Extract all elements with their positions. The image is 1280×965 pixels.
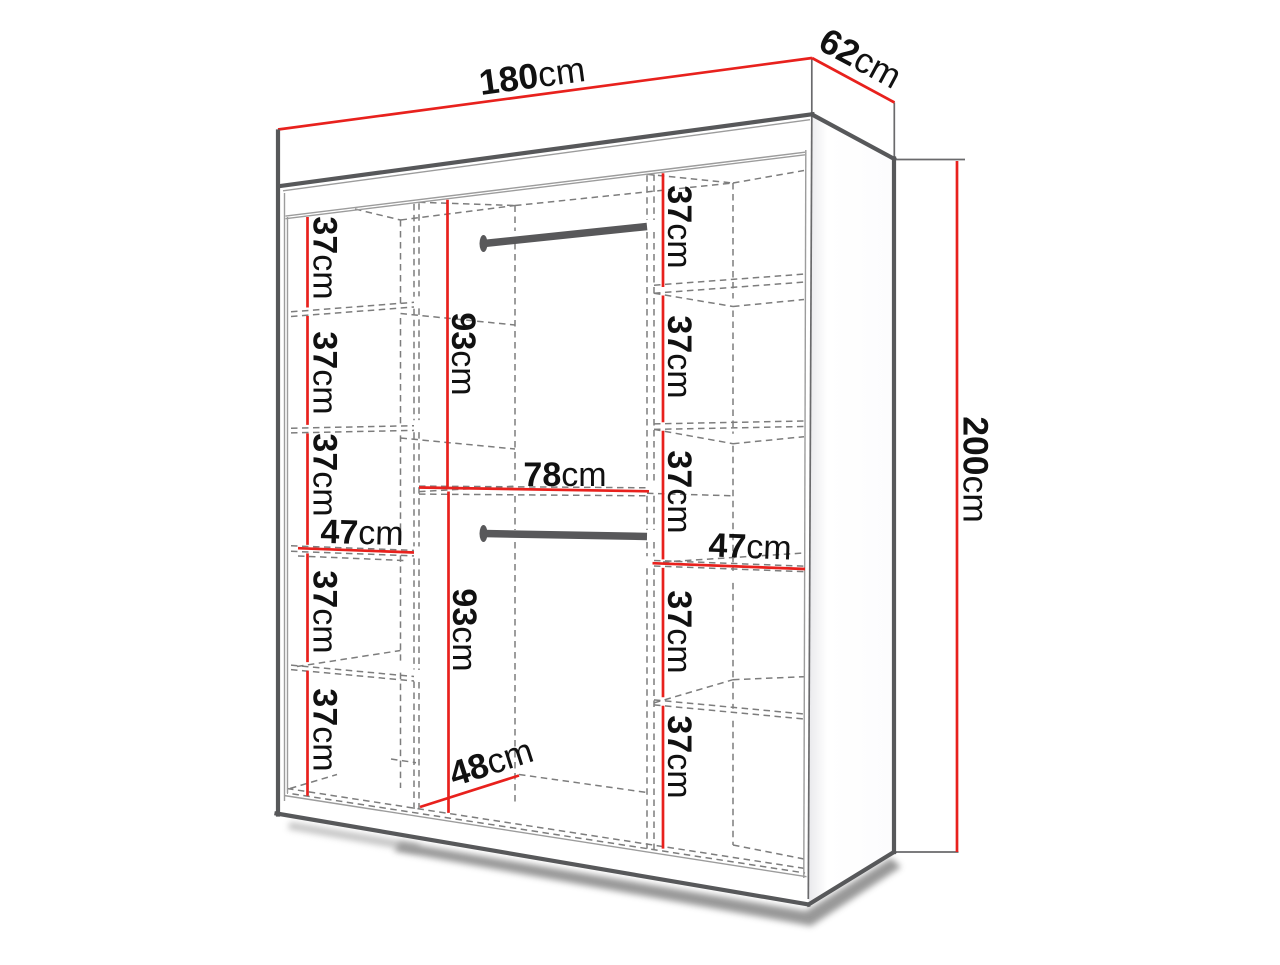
- svg-text:78cm: 78cm: [523, 456, 606, 494]
- svg-text:37cm: 37cm: [306, 331, 344, 414]
- svg-text:93cm: 93cm: [445, 588, 483, 671]
- svg-text:37cm: 37cm: [306, 216, 344, 299]
- svg-text:37cm: 37cm: [306, 688, 344, 771]
- svg-text:37cm: 37cm: [660, 185, 698, 268]
- svg-text:93cm: 93cm: [444, 312, 482, 395]
- svg-text:37cm: 37cm: [660, 590, 698, 673]
- svg-text:47cm: 47cm: [320, 513, 404, 553]
- svg-text:37cm: 37cm: [660, 315, 698, 398]
- svg-text:37cm: 37cm: [660, 715, 698, 798]
- svg-text:37cm: 37cm: [306, 433, 344, 516]
- svg-text:37cm: 37cm: [306, 570, 344, 653]
- svg-text:47cm: 47cm: [708, 526, 793, 567]
- svg-text:200cm: 200cm: [955, 416, 995, 523]
- svg-text:37cm: 37cm: [660, 450, 698, 533]
